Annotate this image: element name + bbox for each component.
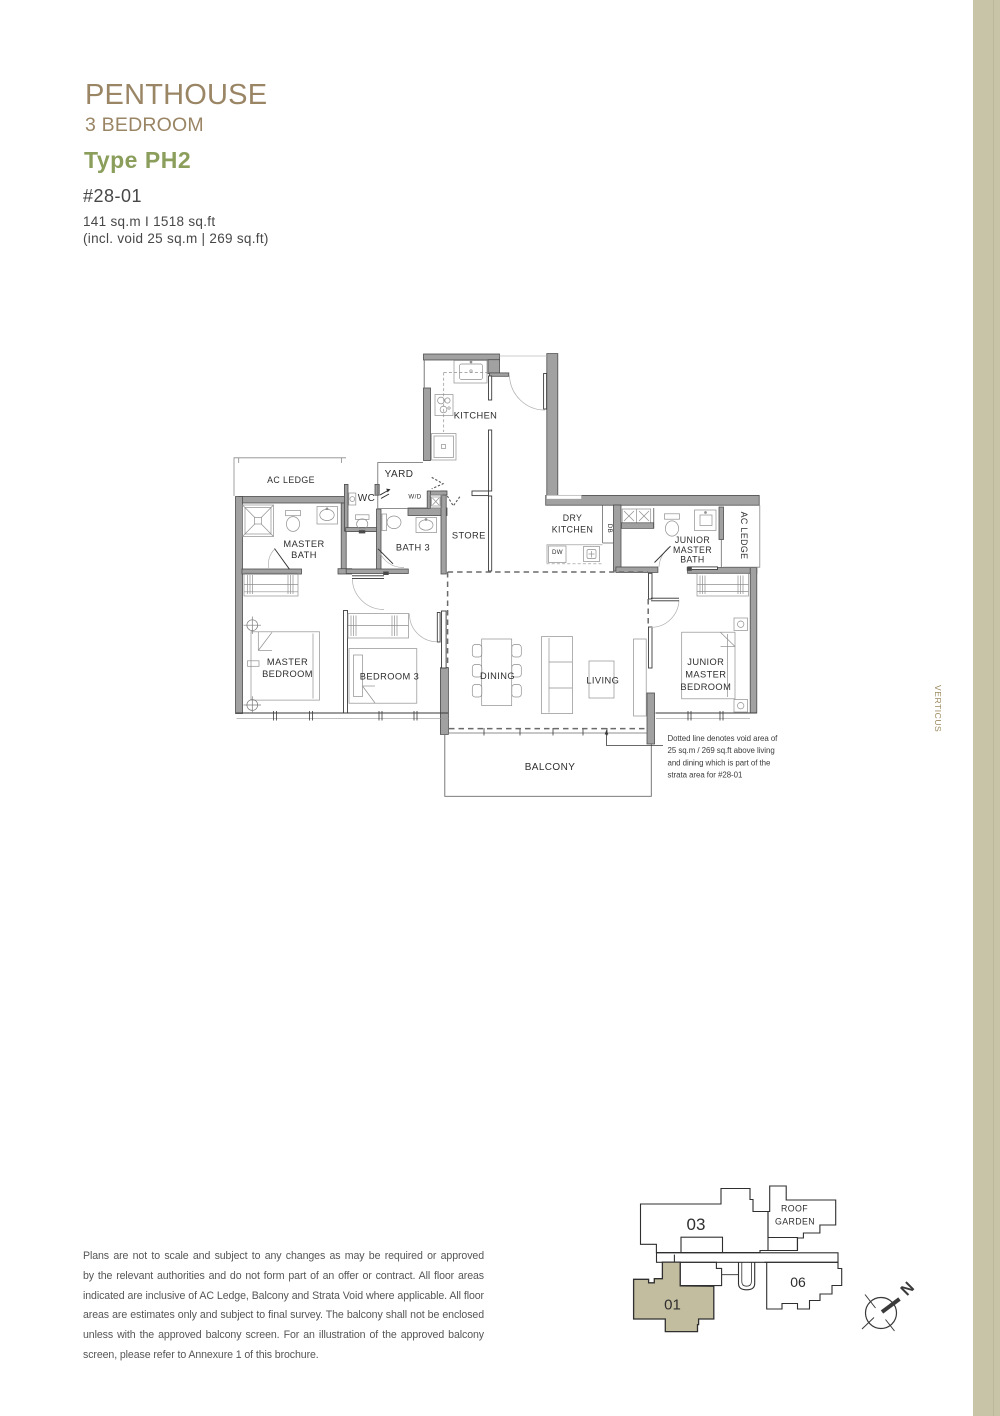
svg-text:MASTER: MASTER xyxy=(267,657,308,667)
svg-text:and dining which is part of th: and dining which is part of the xyxy=(668,758,772,767)
svg-text:W/D: W/D xyxy=(408,494,421,501)
svg-text:AC LEDGE: AC LEDGE xyxy=(267,475,315,485)
svg-text:MASTER: MASTER xyxy=(673,545,712,555)
svg-text:JUNIOR: JUNIOR xyxy=(687,657,724,667)
svg-text:LIVING: LIVING xyxy=(586,676,619,686)
svg-text:AC LEDGE: AC LEDGE xyxy=(739,512,749,560)
svg-text:Dotted line denotes void area: Dotted line denotes void area of xyxy=(668,734,779,743)
svg-text:DB: DB xyxy=(606,524,613,533)
svg-text:BEDROOM: BEDROOM xyxy=(262,669,313,679)
svg-text:KITCHEN: KITCHEN xyxy=(552,525,593,535)
svg-text:DINING: DINING xyxy=(480,671,515,681)
svg-text:BATH: BATH xyxy=(680,555,704,565)
svg-text:STORE: STORE xyxy=(452,531,486,541)
svg-text:YARD: YARD xyxy=(385,469,414,480)
svg-text:MASTER: MASTER xyxy=(283,539,324,549)
svg-text:ROOF: ROOF xyxy=(781,1204,808,1214)
svg-text:BALCONY: BALCONY xyxy=(525,762,576,773)
svg-text:BATH: BATH xyxy=(291,550,317,560)
svg-text:strata area for #28-01: strata area for #28-01 xyxy=(668,771,743,780)
svg-text:01: 01 xyxy=(664,1297,681,1314)
svg-text:MASTER: MASTER xyxy=(685,670,726,680)
svg-text:GARDEN: GARDEN xyxy=(775,1217,815,1227)
svg-text:WC: WC xyxy=(358,493,375,504)
svg-text:JUNIOR: JUNIOR xyxy=(675,535,710,545)
svg-text:DRY: DRY xyxy=(563,513,583,523)
svg-text:KITCHEN: KITCHEN xyxy=(454,411,498,421)
svg-text:DW: DW xyxy=(552,549,563,556)
svg-text:25 sq.m / 269 sq.ft above livi: 25 sq.m / 269 sq.ft above living xyxy=(668,746,775,755)
svg-text:N: N xyxy=(898,1279,918,1299)
svg-text:BATH 3: BATH 3 xyxy=(396,543,430,553)
svg-text:06: 06 xyxy=(790,1274,806,1290)
svg-text:03: 03 xyxy=(687,1215,706,1234)
svg-text:BEDROOM: BEDROOM xyxy=(680,682,731,692)
svg-text:BEDROOM 3: BEDROOM 3 xyxy=(360,672,419,682)
